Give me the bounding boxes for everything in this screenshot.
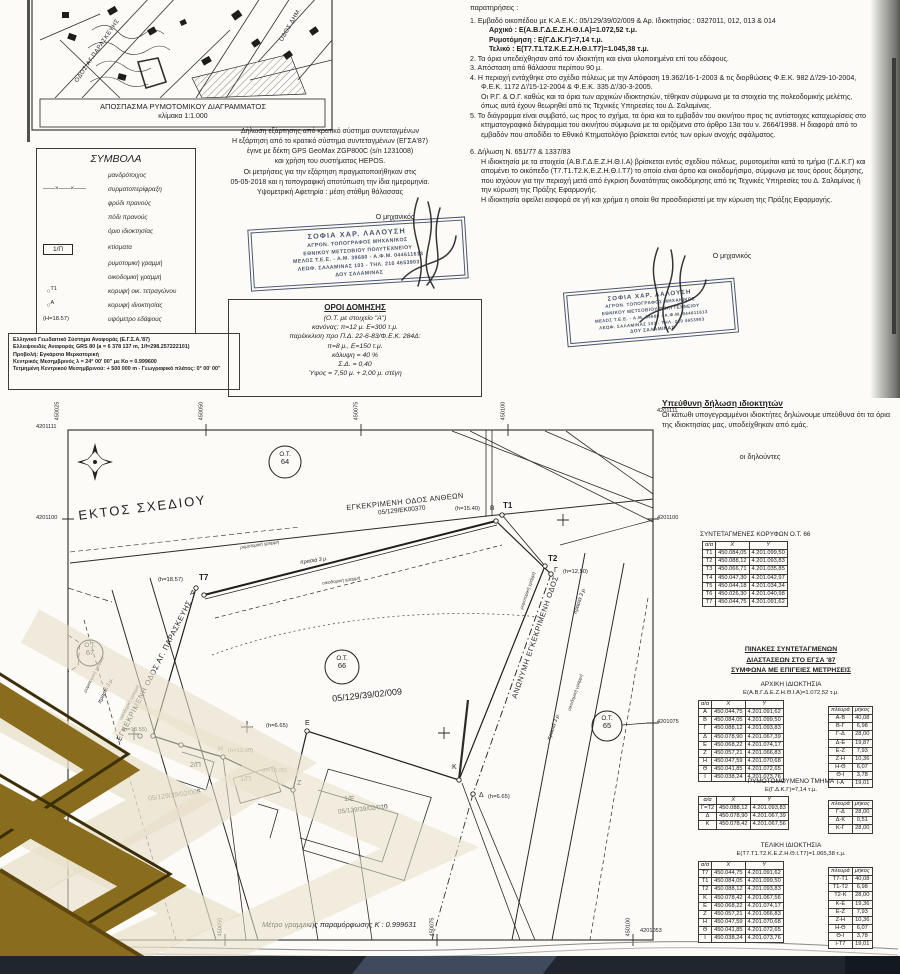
map-excerpt-drawing [40, 0, 332, 98]
final-property-title: ΤΕΛΙΚΗ ΙΔΙΟΚΤΗΣΙΑ [696, 842, 886, 849]
footer-bar-segment [352, 956, 557, 974]
gps-declaration: Δήλωση εξάρτησης από κρατικό σύστημα συν… [180, 127, 480, 198]
notes-block: παρατηρήσεις :1. Εμβαδό οικοπέδου με Κ.Α… [470, 4, 868, 205]
pt-k: Κ [452, 764, 457, 771]
ot-64-label: Ο.Τ.64 [272, 452, 298, 466]
distortion-factor-label: Μέτρο γραμμικής παραμόρφωσης Κ : 0.99963… [262, 920, 417, 929]
pt-h-elev: (h=13.90) [228, 748, 253, 754]
frame-coord-left-1: 4201100 [36, 515, 57, 521]
pt-d-elev: (h=6.65) [488, 794, 510, 800]
legend-item: πόδι πρανούς [37, 210, 195, 224]
initial-sides-table: πλευράμήκοςΑ-Β40,08Β-Γ6,98Γ-Δ28,00Δ-Ε19,… [828, 706, 873, 788]
frame-coord-bottom-1: 450075 [429, 918, 435, 937]
scan-edge-left [27, 0, 30, 142]
initial-property-title: ΑΡΧΙΚΗ ΙΔΙΟΚΤΗΣΙΑ [696, 681, 886, 688]
building-terms-box: ΟΡΟΙ ΔΟΜΗΣΗΣ (Ο.Τ. με στοιχείο "Α")κανόν… [228, 299, 482, 397]
expropriated-title: ΡΥΜΟΤΟΜΟΥΜΕΝΟ ΤΜΗΜΑ [696, 778, 886, 785]
symbols-legend: ΣΥΜΒΟΛΑ μανδρότοιχος ——×——×——συρματοπερί… [36, 148, 196, 334]
owners-declaration-signers: οι δηλούντες [700, 452, 820, 461]
survey-document-page: ΑΠΟΣΠΑΣΜΑ ΡΥΜΟΤΟΜΙΚΟΥ ΔΙΑΓΡΑΜΜΑΤΟΣ κλίμα… [0, 0, 900, 974]
pt-g: Γ [554, 567, 558, 574]
map-caption-scale: κλίμακα 1:1.000 [42, 113, 324, 120]
pt-e-elev: (h=6.65) [266, 723, 288, 729]
frame-coord-bottom-0: 450050 [217, 918, 223, 937]
frame-coord-left-0: 4201111 [36, 424, 57, 430]
building-terms-title: ΟΡΟΙ ΔΟΜΗΣΗΣ [229, 303, 481, 312]
pt-e: Ε [305, 720, 310, 727]
pt-t2: Τ2 [548, 554, 557, 563]
legend-item: φρύδι πρανούς [37, 196, 195, 210]
ot-65-label: Ο.Τ.65 [594, 716, 620, 730]
frame-coord-top-0: 450025 [54, 402, 60, 421]
map-caption-title: ΑΠΟΣΠΑΣΜΑ ΡΥΜΟΤΟΜΙΚΟΥ ΔΙΑΓΡΑΜΜΑΤΟΣ [42, 102, 324, 111]
frame-coord-left-3: 4201053 [32, 930, 54, 936]
frame-coord-right-2: 4201075 [657, 719, 679, 725]
footer-dark-bar [0, 956, 900, 974]
legend-item: μανδρότοιχος [37, 168, 195, 182]
expropriated-coords-table: α/αXYΓ=Τ2450.088,124.201.093,83Δ450.078,… [698, 796, 789, 830]
legend-item: ρυμοτομική γραμμή [37, 256, 195, 270]
final-sides-table: πλευράμήκοςΤ7-Τ140,08Τ1-Τ26,98Τ2-Κ28,00Κ… [828, 867, 873, 949]
symbols-title: ΣΥΜΒΟΛΑ [37, 153, 195, 165]
property-vertex-icon: ○Α [43, 300, 101, 309]
ot66-table-title: ΣΥΝΤΕΤΑΓΜΕΝΕΣ ΚΟΡΥΦΩΝ Ο.Τ. 66 [700, 531, 810, 538]
frame-coord-left-2: 4201075 [36, 729, 58, 735]
north-compass-icon [77, 443, 113, 481]
pt-t7: Τ7 [199, 573, 208, 582]
ot66-table: α/αXYΤ1450.084,054.201.099,50Τ2450.088,1… [702, 541, 788, 607]
legend-item: οικοδομική γραμμή [37, 270, 195, 284]
initial-property-area: Ε(Α.Β.Γ.Δ.Ε.Ζ.Η.Θ.Ι.Α)=1.072,52 τ.μ. [696, 690, 886, 696]
block-vertex-icon: ○Τ1 [43, 286, 101, 295]
legend-item: ○Τ1κορυφή οικ. τετραγώνου [37, 284, 195, 298]
pt-z: Ζ [297, 780, 301, 787]
legend-item: όριο ιδιοκτησίας [37, 224, 195, 238]
pt-1300: (h=13.00) [262, 768, 287, 774]
pt-t1: Τ1 [503, 501, 512, 510]
final-property-area: Ε(Τ7.Τ1.Τ2.Κ.Ε.Ζ.Η.Θ.Ι.Τ7)=1.065,38 τ.μ. [696, 851, 886, 857]
road-paraskevis [68, 578, 258, 940]
engineer-label-right: Ο μηχανικός [672, 253, 792, 260]
geodetic-lines: Ελληνικό Γεωδαιτικό Σύστημα Αναφοράς (Ε.… [9, 334, 239, 376]
frame-coord-right-3: 4201053 [640, 928, 662, 934]
legend-item: (Η=18.57)υψόμετρο εδάφους [37, 312, 195, 326]
building-terms-lines: (Ο.Τ. με στοιχείο "Α")κανόνας: π=12 μ. Ε… [229, 314, 481, 378]
frame-coord-top-3: 450100 [500, 402, 506, 421]
legend-item: 1/Πκτίσματα [37, 238, 195, 256]
pt-t1-elev: (h=15.40) [455, 506, 480, 512]
pt-t7-elev: (h=18.57) [158, 577, 183, 583]
building-box-icon: 1/Π [43, 238, 101, 256]
expropriated-area: Ε(Γ.Δ.Κ.Γ)=7,14 τ.μ. [696, 787, 886, 793]
building-1p-label: 1/Π [240, 776, 251, 783]
legend-item: ——×——×——συρματοπερίφραξη [37, 182, 195, 196]
geodetic-box: Ελληνικό Γεωδαιτικό Σύστημα Αναφοράς (Ε.… [8, 333, 240, 390]
owners-declaration-title: Υπεύθυνη δήλωση ιδιοκτητών [662, 398, 783, 408]
elevation-text-icon: (Η=18.57) [43, 316, 101, 322]
final-coords-table: α/αXYΤ7450.044,754.201.091,62Τ1450.084,0… [698, 861, 784, 943]
frame-coord-right-1: 4201100 [657, 515, 678, 521]
frame-coord-bottom-2: 450100 [625, 918, 631, 937]
paper-edge [25, 942, 898, 957]
wire-fence-line-icon: ——×——×—— [43, 186, 101, 192]
pt-1855: (h=18.55) [122, 727, 147, 733]
tables-header: ΠΙΝΑΚΕΣ ΣΥΝΤΕΤΑΓΜΕΝΩΝΔΙΑΣΤΑΣΕΩΝ ΣΤΟ ΕΓΣΑ… [696, 645, 886, 677]
pt-h: Η [218, 746, 223, 753]
footer-bar-right [845, 956, 900, 974]
pt-g-elev: (h=12,50) [563, 569, 588, 575]
parcel-1e-label: 1/Ε [344, 796, 355, 803]
neighbour-parcels [176, 700, 535, 940]
adjacent-roads [452, 430, 653, 522]
pt-a: Α [190, 590, 195, 597]
legend-item: ○Ακορυφή ιδιοκτησίας [37, 298, 195, 312]
ot-66-label: Ο.Τ.66 [329, 656, 355, 670]
ot-67-label: Ο.Τ.67 [77, 643, 103, 657]
pt-b: Β [490, 505, 495, 512]
expropriated-sides-table: πλευράμήκοςΓ-Δ28,00Δ-Κ0,51Κ-Γ28,00 [828, 800, 873, 834]
owners-declaration-body: Οι κάτωθι υπογεγραμμένοι ιδιοκτήτες δηλώ… [662, 410, 896, 430]
road-anonymi [512, 520, 653, 940]
building-2p-label: 2/Π [190, 762, 201, 769]
scan-edge-right-dark [892, 58, 896, 334]
frame-coord-top-2: 450075 [353, 402, 359, 421]
initial-coords-table: α/αXYΑ450.044,754.201.091,62Β450.084,054… [698, 700, 784, 782]
frame-coord-right-0: 4201111 [657, 408, 678, 414]
pt-d: Δ [479, 792, 484, 799]
frame-coord-top-1: 450050 [198, 402, 204, 421]
